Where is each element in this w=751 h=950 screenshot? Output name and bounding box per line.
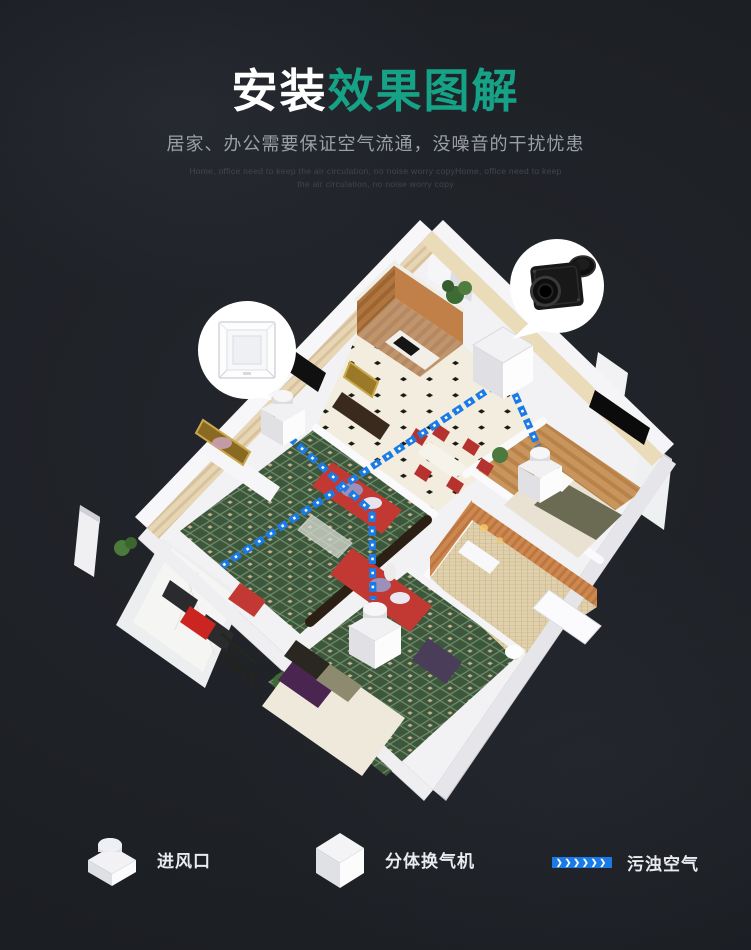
plant (442, 280, 454, 292)
title-part-white: 安装 (232, 65, 328, 117)
panel-slot (243, 372, 251, 375)
air-inlet-panel-icon (219, 322, 275, 378)
air-inlet-3d-icon (82, 826, 142, 892)
header: 安装效果图解 居家、办公需要保证空气流通，没噪音的干扰忧患 Home, offi… (0, 66, 751, 192)
toilet (505, 645, 523, 659)
legend-label: 进风口 (157, 847, 211, 872)
statue (384, 563, 396, 581)
subtitle-english: Home, office need to keep the air circul… (0, 165, 751, 192)
ventilator-box-3d-icon (310, 826, 370, 892)
subtitle-en-line1: Home, office need to keep the air circul… (0, 165, 751, 179)
unit-duct-top (363, 602, 387, 616)
sofa-cushion (390, 592, 410, 604)
legend-item-air-inlet: 进风口 (82, 826, 211, 892)
unit-duct-top (530, 447, 550, 459)
plant (492, 447, 508, 463)
balcony-plant-leaf (125, 537, 137, 549)
warm-light (480, 524, 488, 532)
painting-flowers (212, 437, 232, 449)
subtitle-en-line2: the air circulation, no noise worry copy (0, 178, 751, 192)
page-title: 安装效果图解 (0, 66, 751, 117)
warm-light (497, 537, 503, 543)
icon-duct-top (98, 838, 122, 852)
page-background: 安装效果图解 居家、办公需要保证空气流通，没噪音的干扰忧患 Home, offi… (0, 0, 751, 950)
unit-duct-top (273, 390, 293, 402)
balcony-railing-bars (224, 648, 252, 686)
blue-dashed-arrow-icon: ❯❯❯❯❯❯ (552, 857, 612, 868)
title-part-green: 效果图解 (328, 65, 520, 117)
legend-label: 分体换气机 (385, 847, 475, 872)
legend: 进风口 分体换气机 ❯❯❯❯❯❯ 污浊空气 (0, 824, 751, 914)
fan-duct-core (538, 284, 553, 299)
legend-label: 污浊空气 (627, 850, 699, 875)
plant (458, 281, 472, 295)
legend-item-polluted-air: ❯❯❯❯❯❯ 污浊空气 (552, 850, 699, 875)
subtitle: 居家、办公需要保证空气流通，没噪音的干扰忧患 (0, 130, 751, 156)
legend-item-ventilator: 分体换气机 (310, 826, 475, 892)
panel-center (233, 336, 261, 364)
